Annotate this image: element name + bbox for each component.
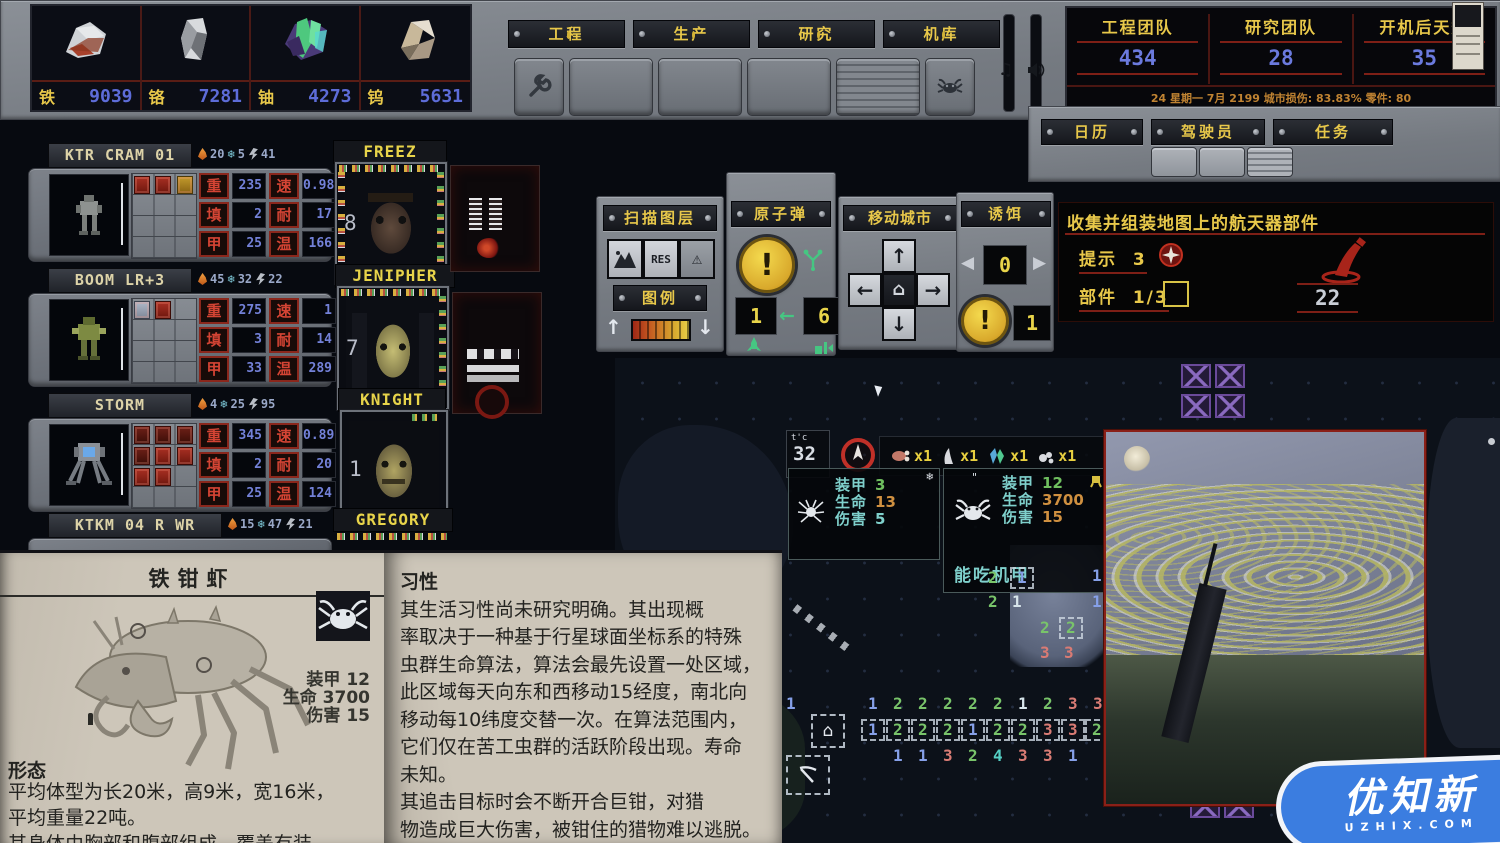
map-grid-number[interactable]: 2 (936, 719, 960, 741)
resource-value: 4273 (308, 86, 351, 107)
map-grid-number: 2 (988, 570, 998, 586)
text-line: 其身体由胸部和腹部组成，覆盖有装 (8, 831, 334, 843)
map-grid-number: 3 (1064, 645, 1074, 661)
site-watermark: 优知新 UZHIX.COM (1274, 753, 1500, 843)
mech-name-label: BOOM LR+3 (75, 271, 165, 289)
pilot-face (349, 421, 439, 517)
wrench-icon (526, 74, 552, 100)
mech-panel[interactable]: 重345 速0.89 填2 耐20 甲25 温124 (28, 418, 332, 512)
empty-key-2[interactable] (658, 58, 742, 116)
bomb-ready-count: 1 (735, 297, 777, 335)
repair-key[interactable] (514, 58, 564, 116)
resource-label: 铬 (149, 84, 165, 108)
text-line: 未知。 (400, 762, 778, 790)
heat-value: 20 (210, 147, 224, 161)
move-north-button[interactable]: ↑ (882, 239, 916, 273)
mech-badges: 4 ❄25 95 (198, 397, 332, 411)
resource-tungsten: 钨5631 (361, 6, 471, 110)
mech-stats: 重275 速1 填3 耐14 甲33 温289 (199, 298, 336, 382)
tab-hangar[interactable]: 机库 (883, 20, 1000, 48)
equipment-slot-chip[interactable] (155, 447, 171, 465)
quick-key-row (514, 58, 975, 114)
form-text: 平均体型为长20米，高9米，宽16米， 平均重量22吨。 其身体由胸部和腹部组成… (8, 779, 334, 843)
gear-detail (467, 375, 519, 382)
weight-value: 345 (232, 423, 266, 449)
music-note-icon: ♫ (998, 60, 1013, 80)
pilot-name-label: GREGORY (356, 510, 430, 529)
cold-value: 32 (238, 272, 252, 286)
map-grid-number: 2 (918, 696, 928, 712)
encyclopedia-left-page: 铁钳虾 装甲 12 生命 3700 伤害 15 形态 平均体型为长20米，高9米… (0, 550, 384, 843)
pilot-name-label: KNIGHT (360, 390, 424, 409)
count-label: 6 (818, 304, 830, 328)
mech-stats: 重345 速0.89 填2 耐20 甲25 温124 (199, 423, 336, 507)
speed-value: 1 (302, 298, 336, 324)
weight-label: 重 (199, 173, 229, 199)
armor-label: 甲 (199, 231, 229, 257)
map-grid-number: 1 (918, 748, 928, 764)
hint-icon[interactable] (1159, 243, 1183, 271)
bait-increase-arrow[interactable]: ▶ (1033, 253, 1046, 273)
reload-label: 填 (199, 327, 229, 353)
mission-title-rule (1065, 233, 1485, 235)
atomic-bomb-plate: 原子弹 ! 1 ← 6 (726, 172, 836, 356)
text-line: 移动每10纬度交替一次。在算法范围内， (400, 707, 778, 735)
weight-value: 275 (232, 298, 266, 324)
pilot-key-2[interactable] (1199, 147, 1245, 177)
panel-title-label: 原子弹 (754, 205, 808, 223)
radiation-icon (801, 247, 825, 275)
game-screen: 铁9039 铬7281 铀4273 钨5631 工程 生产 研究 机库 (0, 0, 1500, 843)
map-grid-number: 1 (1018, 696, 1028, 712)
map-grid-number[interactable]: 2 (1011, 719, 1035, 741)
equipment-slots[interactable] (131, 298, 197, 384)
equipment-slot-chip[interactable] (155, 426, 171, 444)
atomic-bomb-title: 原子弹 (731, 201, 831, 227)
equipment-slots[interactable] (131, 173, 197, 259)
damage-value: 15 (346, 706, 370, 726)
res-label: RES (651, 253, 671, 266)
mission-hints: 提示 3 (1079, 245, 1147, 270)
armor-value: 12 (346, 670, 370, 690)
tab-label: 研究 (798, 25, 834, 43)
reload-value: 3 (232, 327, 266, 353)
reload-label: 填 (199, 452, 229, 478)
resource-chromium: 铬7281 (142, 6, 252, 110)
pilot-name-knight[interactable]: KNIGHT (338, 388, 446, 412)
bait-title: 诱饵 (961, 201, 1051, 227)
team-stats-panel: 工程团队 434 研究团队 28 开机后天数 35 24 星期一 7月 2199… (1065, 6, 1497, 110)
map-grid-number: 3 (1040, 645, 1050, 661)
map-grid-number[interactable]: 2 (1059, 617, 1083, 639)
part-checkbox[interactable] (1163, 281, 1189, 307)
temp-value: 289 (302, 356, 336, 382)
equipment-slot-chip[interactable] (155, 301, 171, 319)
map-grid-number: 2 (988, 594, 998, 610)
calendar-button[interactable]: 日历 (1041, 119, 1143, 145)
speed-label: 速 (269, 173, 299, 199)
map-grid-number[interactable]: 3 (1061, 719, 1085, 741)
legend-up-arrow[interactable]: ↑ (605, 315, 622, 339)
bait-selected-count: 0 (983, 245, 1027, 285)
mech-name-label: KTR CRAM 01 (65, 146, 175, 164)
heat-icon (198, 273, 207, 285)
map-grid-number: 3 (1043, 748, 1053, 764)
resource-iron: 铁9039 (32, 6, 142, 110)
map-grid-number: 1 (868, 696, 878, 712)
move-city-plate: 移动城市 ↑ ← ⌂ → ↓ (838, 196, 960, 350)
button-label: 驾驶员 (1181, 123, 1235, 141)
stat-label: 研究团队 (1210, 14, 1351, 38)
hint-value: 3 (1133, 250, 1147, 270)
move-south-button[interactable]: ↓ (882, 307, 916, 341)
count-label: 0 (999, 253, 1011, 277)
resource-layer-button[interactable]: RES (643, 239, 679, 279)
reload-label: 填 (199, 202, 229, 228)
fuel-gauge (121, 433, 123, 495)
move-city-title: 移动城市 (843, 205, 957, 231)
text-line: 物造成巨大伤害，被钳住的猎物难以逃脱。 (400, 817, 778, 843)
spacecraft-part-icon (1307, 237, 1377, 287)
armor-value: 25 (232, 231, 266, 257)
count-label: 1 (750, 304, 762, 328)
resource-label: 铀 (258, 84, 274, 108)
button-label: 任务 (1315, 123, 1351, 141)
endurance-value: 14 (302, 327, 336, 353)
event-picture (1104, 430, 1426, 806)
chromium-ore-icon (142, 8, 250, 72)
claw-value: 22 (268, 272, 282, 286)
rocket-icon (747, 337, 761, 357)
warning-triangle-icon: ⚠ (692, 249, 702, 269)
iron-ore-icon (32, 8, 140, 72)
tungsten-ore-icon (361, 8, 471, 72)
text-line: 它们仅在苦工虫群的活跃阶段出现。寿命 (400, 734, 778, 762)
stat-value: 28 (1210, 46, 1351, 70)
resource-label: 铁 (39, 84, 55, 108)
mountain-icon (613, 249, 637, 269)
mission-title: 收集并组装地图上的航天器部件 (1067, 209, 1319, 234)
pilot-medals (437, 172, 444, 274)
pilot-gear-panel (452, 292, 542, 414)
creature-thumbnail (316, 591, 370, 641)
claw-icon (285, 518, 295, 530)
pilot-key-3[interactable] (1247, 147, 1293, 177)
picture-moon (1124, 446, 1150, 472)
weight-label: 重 (199, 298, 229, 324)
map-grid-number: 2 (893, 696, 903, 712)
scale-figure (88, 713, 93, 725)
endurance-label: 耐 (269, 452, 299, 478)
claw-value: 41 (261, 147, 275, 161)
equipment-slot-chip[interactable] (177, 447, 193, 465)
heat-icon (198, 148, 207, 160)
button-label: 日历 (1074, 123, 1110, 141)
equipment-slot-chip[interactable] (177, 176, 193, 194)
cold-value: 25 (230, 397, 244, 411)
part-distance: 22 (1297, 283, 1358, 313)
hp-value: 3700 (323, 688, 370, 708)
mech-panel[interactable]: 重235 速0.98 填2 耐17 甲25 温166 (28, 168, 332, 262)
pilot-name-label: JENIPHER (352, 266, 437, 285)
legend-title: 图例 (613, 285, 707, 311)
gear-detail (489, 198, 502, 230)
count-label: 1 (1026, 311, 1038, 335)
map-grid-number: 2 (968, 696, 978, 712)
gear-dial (475, 385, 509, 419)
map-grid-number[interactable]: 1 (961, 719, 985, 741)
temp-label: 温 (269, 231, 299, 257)
date-status-line: 24 星期一 7月 2199 城市损伤: 83.83% 零件: 80 (1067, 85, 1495, 106)
bait-deploy-button[interactable]: ! (961, 297, 1009, 345)
empty-key-3[interactable] (747, 58, 831, 116)
tasks-button[interactable]: 任务 (1273, 119, 1393, 145)
bait-available-count: 1 (1013, 305, 1051, 341)
empty-key-1[interactable] (569, 58, 653, 116)
pilot-level: 1 (349, 457, 362, 481)
endurance-label: 耐 (269, 327, 299, 353)
panel-title-label: 移动城市 (868, 209, 932, 227)
picture-clouds (1104, 484, 1426, 663)
panel-title-label: 诱饵 (988, 205, 1024, 223)
danger-layer-button[interactable]: ⚠ (679, 239, 715, 279)
stockpile-icon (815, 339, 833, 358)
move-east-button[interactable]: → (916, 273, 950, 307)
main-tabs: 工程 生产 研究 机库 (508, 20, 1000, 50)
map-grid-number: 1 (1012, 594, 1022, 610)
weight-label: 重 (199, 423, 229, 449)
fuel-gauge (121, 183, 123, 245)
stat-value: 434 (1067, 46, 1208, 70)
transfer-arrow-icon: ← (779, 305, 795, 327)
map-grid-number: 1 (1092, 568, 1102, 584)
text-line: 平均重量22吨。 (8, 805, 334, 831)
claw-value: 95 (261, 397, 275, 411)
speed-value: 0.98 (302, 173, 336, 199)
hint-label: 提示 (1079, 250, 1117, 270)
mech-badges: 45 ❄32 22 (198, 272, 332, 286)
endurance-value: 20 (302, 452, 336, 478)
pilot-medals (412, 414, 442, 421)
cold-icon: ❄ (227, 272, 234, 286)
stat-label: 工程团队 (1067, 14, 1208, 38)
equipment-slot-chip[interactable] (155, 468, 171, 486)
pilot-medals (337, 533, 447, 540)
map-grid-number[interactable]: 2 (886, 719, 910, 741)
text-line: 其生活习性尚未研究明确。其出现概 (400, 597, 778, 625)
pilot-medals (341, 289, 445, 296)
section-title-habits: 习性 (400, 569, 778, 597)
city-home-button[interactable]: ⌂ (882, 273, 916, 307)
gear-detail (477, 238, 501, 258)
mech-panel[interactable]: 重275 速1 填3 耐14 甲33 温289 (28, 293, 332, 387)
uranium-ore-icon (251, 8, 359, 72)
reload-value: 2 (232, 452, 266, 478)
mech-name[interactable]: KTKM 04 R WR (48, 513, 222, 538)
map-grid-number: 4 (993, 748, 1003, 764)
bait-decrease-arrow[interactable]: ◀ (961, 253, 974, 273)
mech-name[interactable]: STORM (48, 393, 192, 418)
pilot-name-jenipher[interactable]: JENIPHER (335, 264, 455, 288)
equipment-slot-chip[interactable] (155, 176, 171, 194)
hp-label: 生命 (283, 688, 317, 708)
tab-engineering[interactable]: 工程 (508, 20, 625, 48)
endurance-label: 耐 (269, 202, 299, 228)
map-grid-number: 2 (1043, 696, 1053, 712)
panel-title-label: 扫描图层 (624, 209, 696, 227)
pilot-name-freez[interactable]: FREEZ (333, 140, 447, 164)
pilot-level: 7 (346, 336, 359, 360)
mech-sprite (50, 425, 126, 503)
pilot-portrait-gregory[interactable] (335, 531, 449, 543)
speed-label: 速 (269, 423, 299, 449)
tab-research[interactable]: 研究 (758, 20, 875, 48)
equipment-slot-chip[interactable] (134, 301, 150, 319)
distance-value: 22 (1315, 286, 1340, 310)
pilot-face (344, 173, 438, 275)
map-grid-number[interactable]: 3 (1036, 719, 1060, 741)
text-line: 平均体型为长20米，高9米，宽16米， (8, 779, 334, 805)
text-line: 率取决于一种基于行星球面坐标系的特殊 (400, 624, 778, 652)
stat-research-team: 研究团队 28 (1210, 14, 1353, 84)
pilot-face (346, 297, 440, 401)
reload-value: 2 (232, 202, 266, 228)
text-line: 此区域每天向东和西移动15经度，南北向 (400, 679, 778, 707)
legend-gradient-bar (631, 319, 691, 341)
endurance-value: 17 (302, 202, 336, 228)
pilot-medals (439, 296, 446, 400)
mission-parts: 部件 1/3 (1079, 283, 1169, 308)
mech-name[interactable]: BOOM LR+3 (48, 268, 192, 293)
heat-value: 15 (240, 517, 254, 531)
resource-uranium: 铀4273 (251, 6, 361, 110)
map-grid-number: 2 (1040, 620, 1050, 636)
speed-label: 速 (269, 298, 299, 324)
equipment-slot-chip[interactable] (177, 426, 193, 444)
temp-value: 166 (302, 231, 336, 257)
map-grid-number: 2 (968, 748, 978, 764)
text-line: 其追击目标时会不断开合巨钳，对猎 (400, 789, 778, 817)
armor-label: 装甲 (306, 670, 340, 690)
damage-label: 伤害 (306, 706, 340, 726)
mech-name[interactable]: KTR CRAM 01 (48, 143, 192, 168)
heat-icon (228, 518, 237, 530)
gear-detail (467, 349, 519, 359)
stat-engineering-team: 工程团队 434 (1067, 14, 1210, 84)
map-grid-number[interactable]: 2 (986, 719, 1010, 741)
armor-label: 甲 (199, 356, 229, 382)
equipment-slot-chip[interactable] (134, 426, 150, 444)
temp-label: 温 (269, 481, 299, 507)
habits-text: 习性 其生活习性尚未研究明确。其出现概 率取决于一种基于行星球面坐标系的特殊 虫… (400, 569, 778, 843)
mech-badges: 20 ❄5 41 (198, 147, 332, 161)
mech-preview (49, 174, 129, 256)
legend-down-arrow[interactable]: ↓ (697, 315, 714, 339)
pilot-key-1[interactable] (1151, 147, 1197, 177)
cold-icon: ❄ (257, 517, 264, 531)
resource-panel: 铁9039 铬7281 铀4273 钨5631 (30, 4, 472, 112)
vent-key[interactable] (836, 58, 920, 116)
equipment-slot-chip[interactable] (134, 468, 150, 486)
equipment-slot-chip[interactable] (134, 447, 150, 465)
pilot-name-gregory[interactable]: GREGORY (333, 508, 453, 532)
map-grid-number: 3 (943, 748, 953, 764)
map-grid-number: 3 (1018, 748, 1028, 764)
gear-detail (469, 198, 482, 230)
tag-icon (1455, 5, 1481, 27)
map-grid-number: 1 (1092, 594, 1102, 610)
tab-label: 机库 (923, 25, 959, 43)
bomb-launch-button[interactable]: ! (739, 237, 795, 293)
mech-name-label: KTKM 04 R WR (75, 516, 195, 534)
temp-value: 124 (302, 481, 336, 507)
fuel-gauge (121, 308, 123, 370)
map-grid-number: 2 (993, 696, 1003, 712)
map-grid-number: 3 (1068, 696, 1078, 712)
watermark-title: 优知新 (1343, 774, 1479, 819)
part-label: 部件 (1079, 288, 1117, 308)
move-west-button[interactable]: ← (848, 273, 882, 307)
heat-value: 45 (210, 272, 224, 286)
encyclopedia-right-page: 习性 其生活习性尚未研究明确。其出现概 率取决于一种基于行星球面坐标系的特殊 虫… (384, 550, 782, 843)
speed-value: 0.89 (302, 423, 336, 449)
map-grid-number[interactable]: 1 (861, 719, 885, 741)
crab-icon (316, 591, 370, 641)
equipment-slot-chip[interactable] (134, 176, 150, 194)
map-grid-number: 3 (1093, 696, 1103, 712)
heat-value: 4 (210, 397, 217, 411)
cold-value: 47 (268, 517, 282, 531)
mech-sprite (50, 175, 126, 253)
cold-icon: ❄ (227, 147, 234, 161)
tab-label: 生产 (673, 25, 709, 43)
scan-layers-title: 扫描图层 (603, 205, 717, 231)
crab-icon (936, 76, 964, 98)
mission-panel: 收集并组装地图上的航天器部件 提示 3 部件 1/3 22 (1058, 202, 1494, 322)
claw-value: 21 (298, 517, 312, 531)
bait-plate: 诱饵 ◀ 0 ▶ ! 1 (956, 192, 1054, 352)
mech-sprite (50, 300, 126, 378)
armor-label: 甲 (199, 481, 229, 507)
claw-icon (255, 273, 265, 285)
pilot-gear-panel (450, 165, 540, 272)
tab-production[interactable]: 生产 (633, 20, 750, 48)
claw-icon (248, 398, 258, 410)
creature-title: 铁钳虾 (0, 563, 384, 593)
pilot-name-label: FREEZ (363, 142, 416, 161)
map-grid-number: 1 (786, 696, 796, 712)
resource-value: 7281 (199, 86, 242, 107)
map-grid-number[interactable]: 2 (911, 719, 935, 741)
equipment-slots[interactable] (131, 423, 197, 509)
pilot-level: 8 (344, 211, 357, 235)
tab-label: 工程 (548, 25, 584, 43)
mech-stats: 重235 速0.98 填2 耐17 甲25 温166 (199, 173, 336, 257)
creature-key[interactable] (925, 58, 975, 116)
resource-value: 5631 (420, 86, 463, 107)
hanging-tag[interactable] (1452, 2, 1484, 70)
mech-name-label: STORM (95, 396, 145, 414)
panel-title-label: 图例 (642, 289, 678, 307)
resource-value: 9039 (89, 86, 132, 107)
cold-icon: ❄ (220, 397, 227, 411)
map-grid-number[interactable]: 1 (1010, 567, 1034, 589)
heat-icon (198, 398, 207, 410)
pilots-button[interactable]: 驾驶员 (1151, 119, 1265, 145)
map-grid-number: 1 (1068, 748, 1078, 764)
armor-value: 33 (232, 356, 266, 382)
terrain-layer-button[interactable] (607, 239, 643, 279)
